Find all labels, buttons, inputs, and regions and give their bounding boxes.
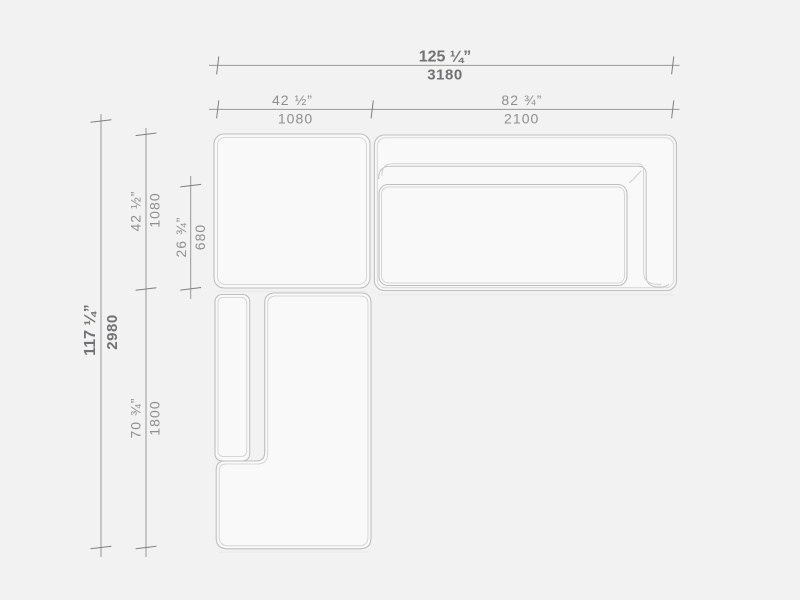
svg-text:125 ¼”: 125 ¼” [419, 49, 471, 66]
svg-text:680: 680 [192, 224, 208, 251]
svg-text:117 ¼”: 117 ¼” [82, 304, 99, 356]
svg-text:26 ¾”: 26 ¾” [173, 216, 189, 257]
svg-text:42 ½”: 42 ½” [272, 92, 313, 108]
svg-text:3180: 3180 [427, 67, 463, 84]
svg-text:82 ¾”: 82 ¾” [501, 92, 542, 108]
svg-text:2980: 2980 [104, 314, 121, 350]
svg-text:42 ½”: 42 ½” [128, 190, 144, 231]
svg-text:2100: 2100 [504, 111, 539, 127]
svg-text:1080: 1080 [278, 111, 313, 127]
svg-text:1800: 1800 [146, 400, 162, 435]
svg-text:1080: 1080 [146, 192, 162, 227]
svg-text:70 ¾”: 70 ¾” [128, 397, 144, 438]
